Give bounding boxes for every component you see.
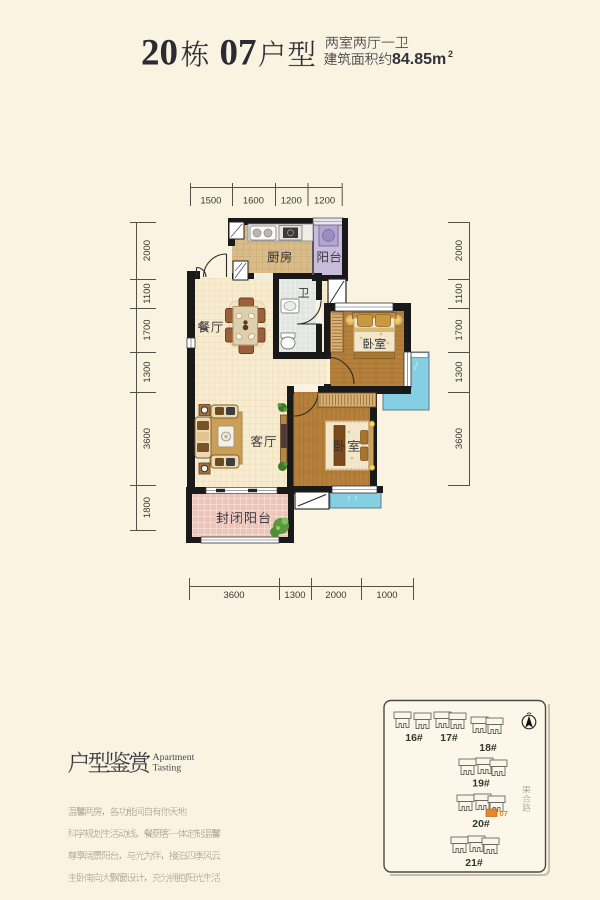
svg-text:20: 20 bbox=[141, 33, 178, 74]
svg-text:2000: 2000 bbox=[454, 240, 465, 261]
svg-text:18#: 18# bbox=[479, 742, 497, 754]
svg-text:3600: 3600 bbox=[142, 428, 153, 449]
svg-text:84.85m: 84.85m bbox=[392, 51, 446, 68]
svg-text:1000: 1000 bbox=[376, 590, 397, 601]
svg-text:1600: 1600 bbox=[243, 196, 264, 207]
svg-text:2000: 2000 bbox=[142, 240, 153, 261]
svg-text:1800: 1800 bbox=[142, 497, 153, 518]
svg-text:3600: 3600 bbox=[223, 590, 244, 601]
svg-text:20#: 20# bbox=[472, 818, 490, 830]
svg-text:16#: 16# bbox=[405, 732, 423, 744]
svg-text:1700: 1700 bbox=[142, 319, 153, 340]
svg-text:1700: 1700 bbox=[454, 319, 465, 340]
svg-text:2: 2 bbox=[448, 49, 453, 59]
svg-text:21#: 21# bbox=[465, 857, 483, 869]
svg-text:19#: 19# bbox=[472, 778, 490, 790]
svg-text:07: 07 bbox=[500, 809, 508, 818]
svg-text:Tasting: Tasting bbox=[153, 763, 182, 774]
svg-text:1300: 1300 bbox=[284, 590, 305, 601]
svg-text:1300: 1300 bbox=[142, 361, 153, 382]
svg-text:1300: 1300 bbox=[454, 361, 465, 382]
svg-text:1100: 1100 bbox=[142, 283, 153, 303]
svg-text:1100: 1100 bbox=[454, 283, 465, 303]
svg-text:1200: 1200 bbox=[314, 196, 335, 207]
svg-text:3600: 3600 bbox=[454, 428, 465, 449]
svg-text:2000: 2000 bbox=[325, 590, 346, 601]
svg-text:1200: 1200 bbox=[281, 196, 302, 207]
svg-text:Apartment: Apartment bbox=[153, 752, 195, 763]
svg-text:1500: 1500 bbox=[200, 196, 221, 207]
svg-text:07: 07 bbox=[220, 33, 257, 74]
svg-text:17#: 17# bbox=[440, 732, 458, 744]
